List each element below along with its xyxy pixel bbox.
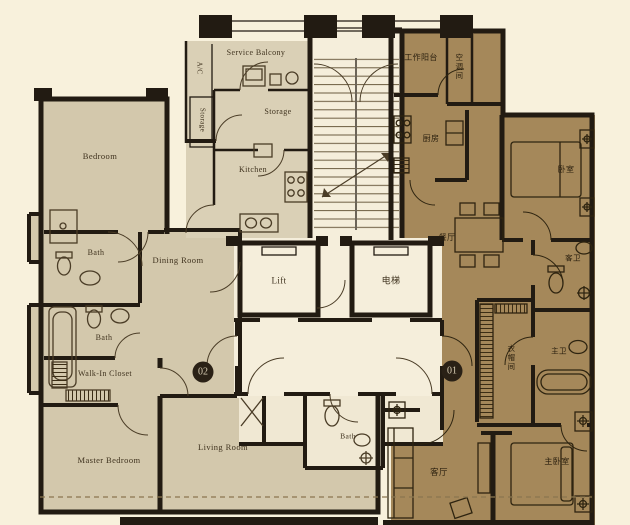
room-label-service-balcony: Service Balcony bbox=[227, 49, 286, 57]
room-label-living-room: Living Room bbox=[198, 443, 248, 452]
floor-plan: A/C Service Balcony Storage Storage Kitc… bbox=[0, 0, 630, 525]
room-label-ac: A/C bbox=[196, 62, 203, 75]
room-label-bedroom-cn: 卧室 bbox=[558, 166, 575, 174]
room-label-master-bath: 主卫 bbox=[551, 347, 567, 355]
room-label-storage-closet: Storage bbox=[199, 108, 206, 132]
unit-badge-01: 01 bbox=[442, 361, 463, 382]
room-label-bath-center: Bath bbox=[340, 432, 356, 440]
room-label-walk-in-closet: Walk-In Closet bbox=[78, 370, 132, 378]
room-label-closet-cn: 衣帽间 bbox=[507, 345, 515, 372]
room-label-kitchen-cn: 厨房 bbox=[423, 135, 440, 143]
floor-plan-drawing bbox=[0, 0, 630, 525]
counter-icon bbox=[394, 158, 409, 173]
room-label-bedroom: Bedroom bbox=[83, 152, 117, 161]
lift-label-cn: 电梯 bbox=[382, 277, 401, 286]
room-label-bath-lower: Bath bbox=[96, 334, 113, 342]
room-label-guest-bath: 客卫 bbox=[565, 254, 581, 262]
room-label-dining-room: Dining Room bbox=[153, 256, 204, 265]
stairs-icon bbox=[314, 58, 399, 230]
room-label-work-balcony: 工作阳台 bbox=[404, 54, 438, 62]
room-label-dining-cn: 餐厅 bbox=[439, 234, 456, 242]
room-label-kitchen: Kitchen bbox=[239, 166, 267, 174]
room-label-living-cn: 客厅 bbox=[430, 468, 448, 477]
unit-badge-02: 02 bbox=[193, 362, 214, 383]
room-label-bath-upper: Bath bbox=[88, 249, 105, 257]
room-label-master-bedroom-cn: 主卧室 bbox=[544, 458, 569, 466]
room-label-master-bedroom: Master Bedroom bbox=[78, 456, 141, 465]
room-label-ac-room: 空调间 bbox=[455, 54, 463, 81]
lift-label-en: Lift bbox=[271, 277, 286, 286]
room-label-storage: Storage bbox=[264, 108, 291, 116]
